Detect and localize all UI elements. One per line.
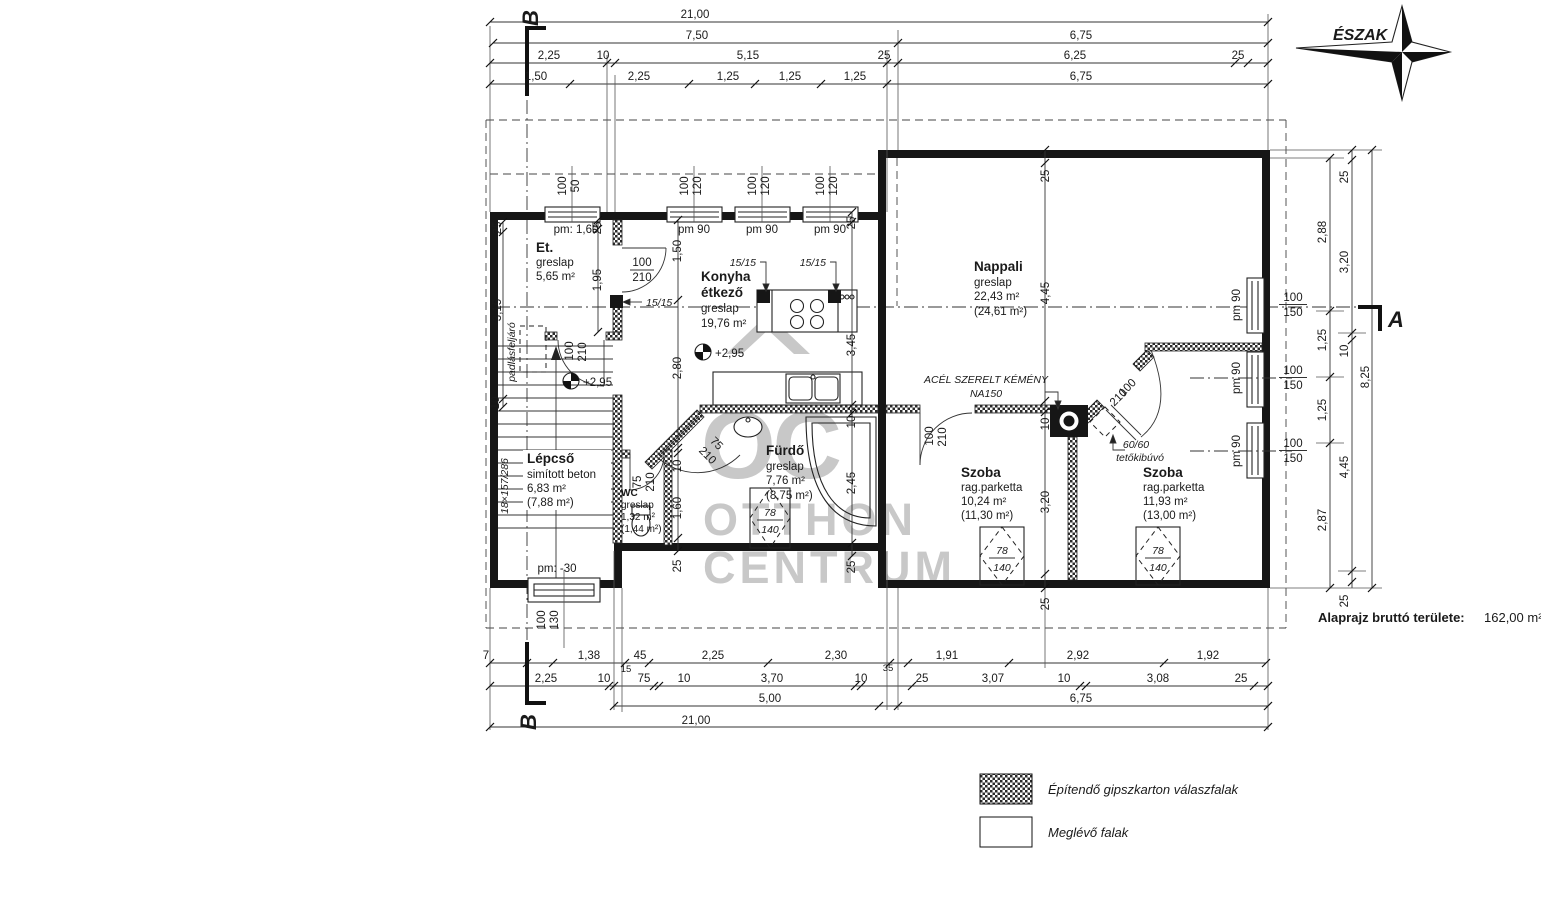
- door-size: 210: [577, 342, 589, 361]
- window-size: 120: [692, 176, 704, 195]
- room-nappali-area: 22,43 m²: [974, 291, 1020, 303]
- column-label: 15/15: [646, 297, 672, 309]
- room-furdo-name: Fürdő: [766, 443, 804, 458]
- dim-label: 2,88: [1317, 221, 1329, 243]
- window-size: 100: [536, 610, 548, 629]
- dim-label: 21,00: [682, 715, 711, 727]
- dim-label: 1,25: [844, 71, 866, 83]
- room-wc-finish: greslap: [621, 500, 654, 511]
- section-marker-a: A: [1358, 307, 1404, 332]
- dim-label: 25: [916, 673, 929, 685]
- dim-label: 25: [878, 50, 891, 62]
- window-size: 150: [1283, 307, 1302, 319]
- roof-window-size: 78: [1152, 545, 1164, 557]
- window-parapet: pm 90: [814, 224, 846, 236]
- room-szoba1-area-gross: (11,30 m²): [961, 510, 1013, 522]
- chimney: [1050, 405, 1088, 437]
- area-note: Alaprajz bruttó területe: 162,00 m²: [1318, 610, 1541, 625]
- door-size: 75: [632, 476, 644, 489]
- window-parapet: pm: -30: [538, 563, 577, 575]
- window-parapet: pm 90: [678, 224, 710, 236]
- room-nappali-area-gross: (24,61 m²): [974, 306, 1027, 318]
- dim-label: 25: [1235, 673, 1248, 685]
- dim-label: 2,80: [672, 357, 684, 379]
- dim-label: 2,92: [1067, 650, 1089, 662]
- dim-label: 6,25: [1064, 50, 1086, 62]
- window-100-150: [1247, 352, 1264, 407]
- room-nappali-finish: greslap: [974, 277, 1012, 289]
- dim-label: 1,38: [578, 650, 600, 662]
- dim-label: 10: [1058, 673, 1071, 685]
- room-szoba2-area: 11,93 m²: [1143, 496, 1188, 508]
- dim-label: 25: [492, 222, 504, 235]
- door-size: 210: [632, 272, 651, 284]
- legend-existing-wall-swatch: [980, 817, 1032, 847]
- stairs-steps-label: 18×157/286: [499, 458, 511, 514]
- level-marker-hall: [563, 373, 579, 389]
- room-lepcso-area: 6,83 m²: [527, 483, 566, 495]
- window-100-150: [1247, 278, 1264, 333]
- room-et-name: Et.: [536, 240, 553, 255]
- door-size: 210: [645, 472, 657, 491]
- dim-label: 1,50: [525, 71, 547, 83]
- dim-label: 2,25: [535, 673, 557, 685]
- dim-label: 10: [598, 673, 611, 685]
- room-wc-area-gross: (1,44 m²): [621, 524, 662, 535]
- column-label: 15/15: [800, 257, 826, 269]
- dim-label: 25: [1232, 50, 1245, 62]
- legend-new-wall-swatch: [980, 774, 1032, 804]
- window-size: 150: [1283, 380, 1302, 392]
- dim-label: 10: [490, 397, 502, 410]
- legend-existing-wall-label: Meglévő falak: [1048, 825, 1130, 840]
- level-konyha-label: +2,95: [715, 348, 744, 360]
- dim-label: 1,25: [717, 71, 739, 83]
- level-marker-konyha: [695, 344, 711, 360]
- section-a-label: A: [1387, 307, 1404, 332]
- window-size: 130: [549, 610, 561, 629]
- dim-label: 2,87: [1317, 509, 1329, 531]
- window-parapet: pm 90: [746, 224, 778, 236]
- window-100-120: [735, 207, 790, 222]
- dim-label: 3,08: [1147, 673, 1169, 685]
- dim-label: 1,60: [672, 497, 684, 519]
- dim-label: 25: [592, 222, 604, 235]
- window-parapet: pm 90: [1231, 435, 1243, 467]
- dim-label: 7,50: [686, 30, 708, 42]
- dim-label: 6,75: [1070, 30, 1092, 42]
- window-parapet: pm 90: [1231, 289, 1243, 321]
- dim-label: 7: [483, 650, 489, 662]
- dim-label: 1,50: [672, 240, 684, 262]
- room-szoba2-area-gross: (13,00 m²): [1143, 510, 1196, 522]
- dim-label: 1,91: [936, 650, 958, 662]
- kitchen-counter: [757, 290, 857, 332]
- dim-label: 5,15: [737, 50, 759, 62]
- existing-walls: [490, 150, 1270, 588]
- roof-window-size: 78: [996, 545, 1008, 557]
- north-label: ÉSZAK: [1333, 25, 1389, 44]
- room-konyha-name: Konyha: [701, 269, 751, 284]
- window-size: 100: [747, 176, 759, 195]
- dim-label: 25: [846, 561, 858, 574]
- dim-label: 2,30: [825, 650, 847, 662]
- dim-label: 10: [678, 673, 691, 685]
- section-b-label: B: [516, 714, 541, 730]
- area-note-value: 162,00 m²: [1484, 610, 1541, 625]
- window-size: 120: [760, 176, 772, 195]
- window-size: 100: [557, 176, 569, 195]
- dim-label: 10: [1339, 345, 1351, 358]
- room-konyha-finish: greslap: [701, 303, 739, 315]
- dim-label: 2,25: [702, 650, 724, 662]
- dim-label: 15: [621, 664, 632, 675]
- dim-label: 25: [846, 217, 858, 230]
- roofhatch-note: tetőkibúvó: [1116, 452, 1164, 464]
- floorplan-drawing: OC OTTHON CENTRUM: [0, 0, 1541, 908]
- roof-window-size: 78: [764, 507, 776, 519]
- kitchen-sink-counter: [713, 372, 862, 405]
- dim-label: 25: [1339, 595, 1351, 608]
- dim-label: 3,15: [492, 299, 504, 321]
- dim-label: 6,75: [1070, 71, 1092, 83]
- room-wc-area: 1,32 m²: [621, 512, 656, 523]
- section-b-label: B: [518, 10, 543, 26]
- room-labels: Et. greslap 5,65 m² Konyha étkező gresla…: [523, 240, 1205, 535]
- dim-label: 4,45: [1040, 282, 1052, 304]
- window-size: 120: [828, 176, 840, 195]
- area-note-label: Alaprajz bruttó területe:: [1318, 610, 1465, 625]
- door-size: 100: [924, 426, 936, 445]
- window-size: 50: [570, 180, 582, 193]
- floorplan-canvas: OC OTTHON CENTRUM: [0, 0, 1541, 908]
- attic-hatch: [520, 326, 546, 372]
- room-lepcso-finish: simított beton: [527, 469, 596, 481]
- roof-window-size: 140: [1149, 562, 1167, 574]
- room-szoba1-name: Szoba: [961, 465, 1001, 480]
- room-konyha-name2: étkező: [701, 285, 743, 300]
- column-15-15: [610, 295, 623, 308]
- dim-label: 3,20: [1040, 491, 1052, 513]
- attic-access-label: padlásfeljáró: [506, 322, 518, 383]
- dim-label: 8,25: [1360, 366, 1372, 388]
- window-parapet: pm 90: [1231, 362, 1243, 394]
- dim-label: 2,45: [846, 472, 858, 494]
- dim-label: 21,00: [681, 9, 710, 21]
- dim-label: 10: [672, 460, 684, 473]
- dim-label: 1,25: [1317, 329, 1329, 351]
- dim-label: 2,25: [538, 50, 560, 62]
- dim-label: 10: [846, 416, 858, 429]
- room-szoba2-finish: rag.parketta: [1143, 482, 1205, 494]
- door-size: 100: [632, 257, 651, 269]
- compass: ÉSZAK: [1296, 6, 1450, 100]
- dim-label: 45: [634, 650, 647, 662]
- window-size: 100: [1283, 292, 1302, 304]
- room-nappali-name: Nappali: [974, 259, 1023, 274]
- dim-label: 25: [1040, 598, 1052, 611]
- dim-label: 25: [672, 560, 684, 573]
- dim-label: 3,07: [982, 673, 1004, 685]
- window-size: 100: [1283, 438, 1302, 450]
- roof-window-size: 140: [761, 524, 779, 536]
- dim-label: 5,00: [759, 693, 781, 705]
- room-lepcso-area-gross: (7,88 m²): [527, 497, 574, 509]
- room-konyha-area: 19,76 m²: [701, 318, 747, 330]
- dim-label: 1,25: [1317, 399, 1329, 421]
- chimney-note-line2: NA150: [970, 388, 1002, 400]
- dim-label: 25: [1339, 171, 1351, 184]
- dim-label: 3,70: [761, 673, 783, 685]
- window-size: 100: [1283, 365, 1302, 377]
- bathroom-sink: [734, 417, 762, 437]
- room-lepcso-name: Lépcső: [527, 451, 574, 466]
- dim-label: 10: [1040, 418, 1052, 431]
- window-100-150: [1247, 423, 1264, 478]
- roofhatch-size: 60/60: [1123, 439, 1149, 451]
- dim-label: 6,75: [1070, 693, 1092, 705]
- roof-window-size: 140: [993, 562, 1011, 574]
- room-szoba1-finish: rag.parketta: [961, 482, 1023, 494]
- dim-label: 1,92: [1197, 650, 1219, 662]
- room-szoba2-name: Szoba: [1143, 465, 1183, 480]
- dim-label: 75: [638, 673, 651, 685]
- window-100-120: [667, 207, 722, 222]
- dim-label: 3,45: [846, 334, 858, 356]
- window-size: 100: [679, 176, 691, 195]
- dim-label: 4,45: [1339, 456, 1351, 478]
- chimney-note-line1: ACÉL SZERELT KÉMÉNY: [923, 373, 1049, 386]
- room-et-finish: greslap: [536, 257, 574, 269]
- room-furdo-area: 7,76 m²: [766, 475, 805, 487]
- room-wc-name: WC: [621, 488, 638, 499]
- room-furdo-area-gross: (8,75 m²): [766, 490, 813, 502]
- room-szoba1-area: 10,24 m²: [961, 496, 1007, 508]
- column-label: 15/15: [730, 257, 756, 269]
- dim-label: 35: [883, 663, 894, 674]
- window-size: 100: [815, 176, 827, 195]
- dim-label: 10: [597, 50, 610, 62]
- legend-new-wall-label: Építendő gipszkarton válaszfalak: [1048, 782, 1240, 797]
- dim-label: 1,95: [592, 269, 604, 291]
- dim-label: 3,20: [1339, 251, 1351, 273]
- level-hall-label: +2,95: [583, 377, 612, 389]
- dim-label: 1,25: [779, 71, 801, 83]
- dim-label: 10: [855, 673, 868, 685]
- room-et-area: 5,65 m²: [536, 271, 575, 283]
- door-size: 100: [564, 341, 576, 360]
- door-size: 210: [937, 427, 949, 446]
- legend: Építendő gipszkarton válaszfalak Meglévő…: [980, 774, 1240, 847]
- window-size: 150: [1283, 453, 1302, 465]
- dim-label: 2,25: [628, 71, 650, 83]
- dim-label: 25: [1040, 170, 1052, 183]
- room-furdo-finish: greslap: [766, 461, 804, 473]
- window-100-50: [545, 207, 600, 222]
